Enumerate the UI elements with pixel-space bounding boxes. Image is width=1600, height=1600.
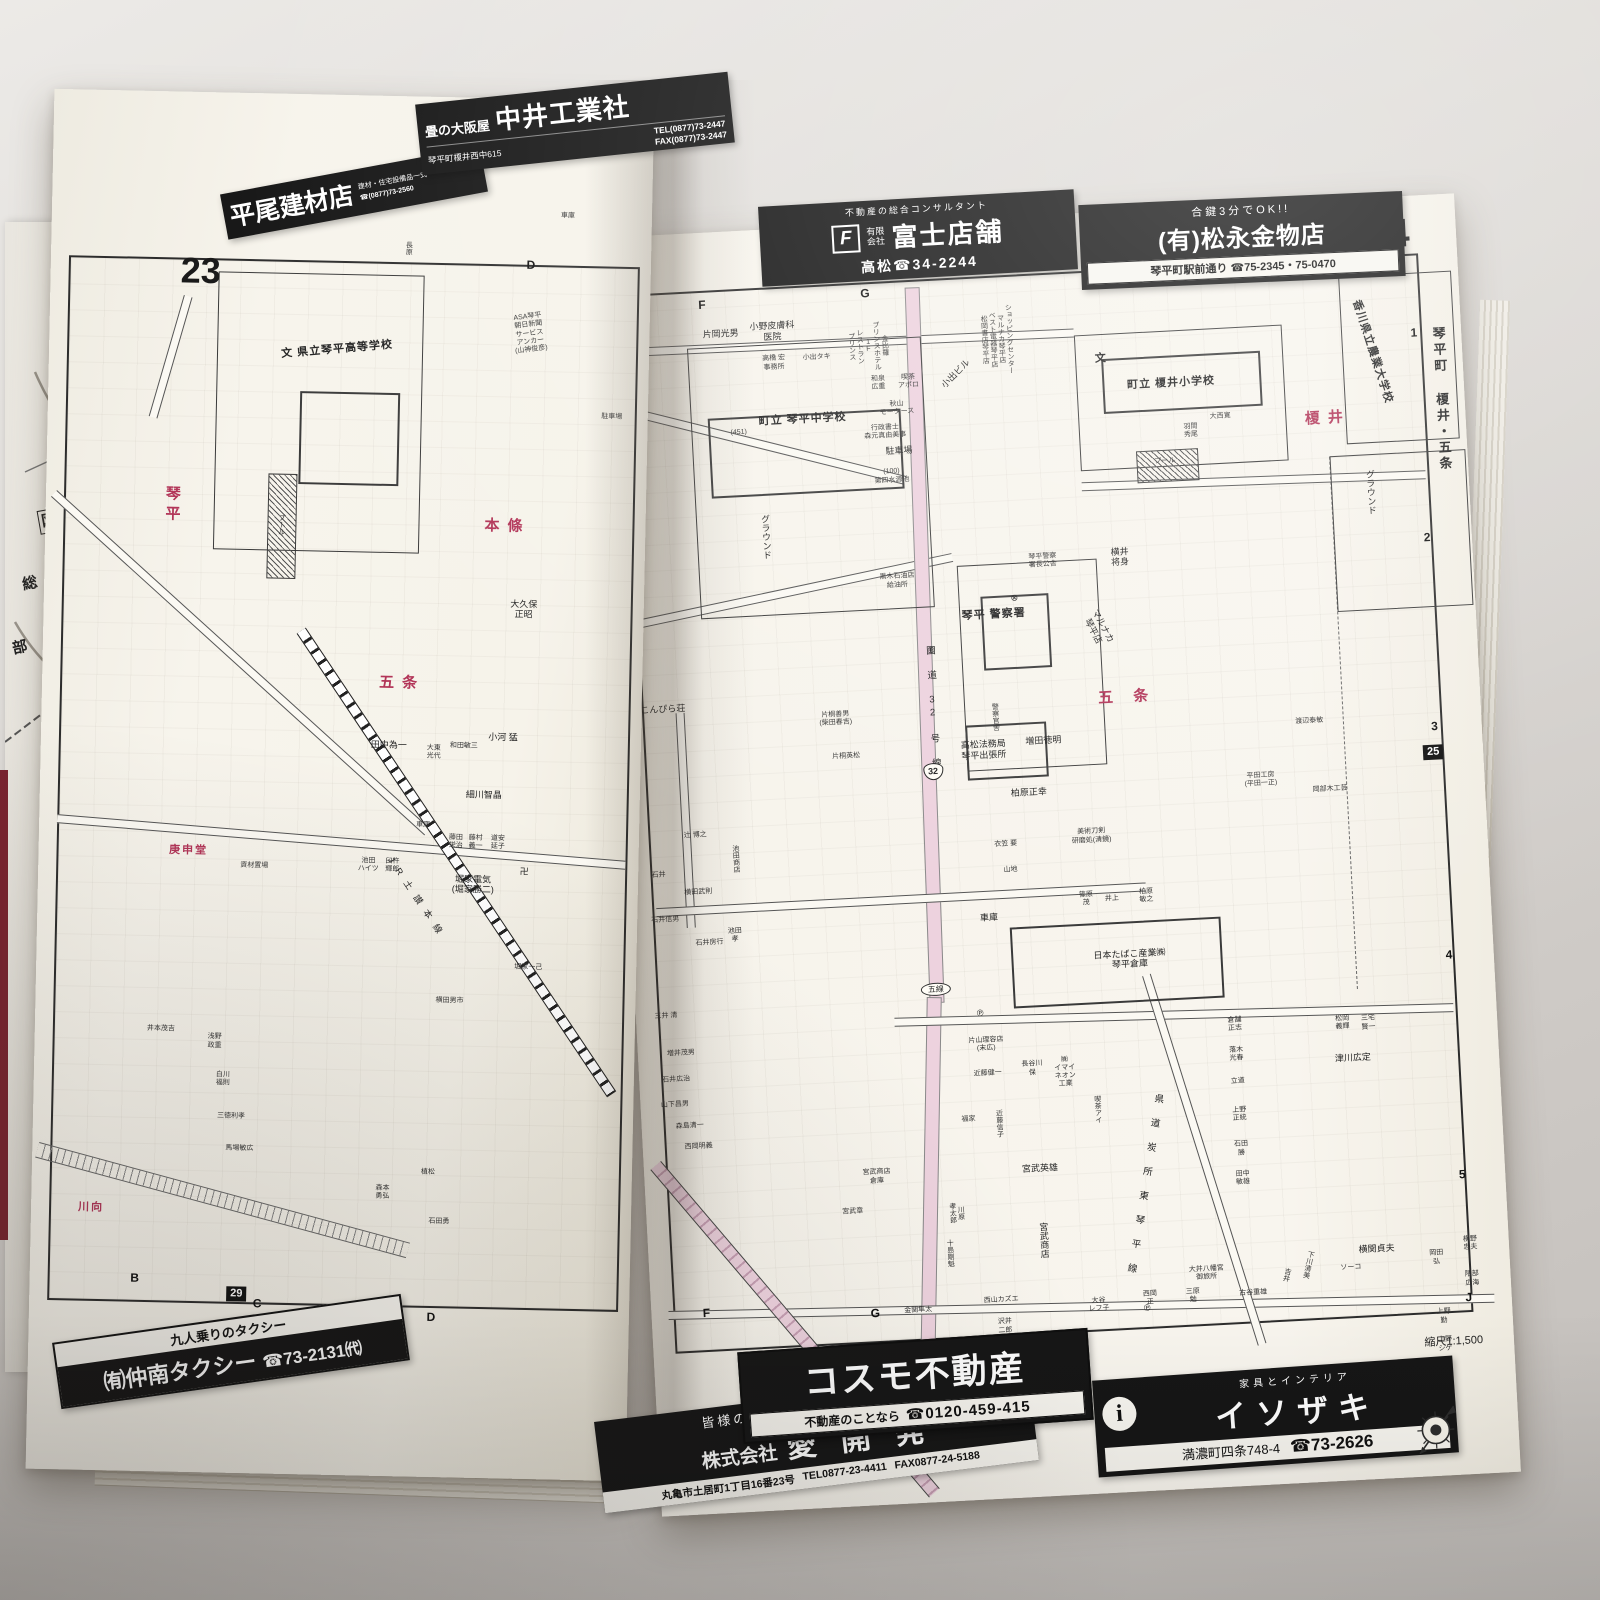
map-label: 大井八幡宮 御旅所 xyxy=(1189,1265,1225,1283)
map-label: 駐車場 xyxy=(601,414,622,423)
ad-cosmo-tagline: 不動産のことなら xyxy=(804,1407,901,1431)
map-label: 川原 孝太郎 xyxy=(947,1202,965,1224)
map-label: 金関隼太 xyxy=(904,1306,932,1316)
map-label: 石井広治 xyxy=(662,1075,690,1085)
map-label: 石田 勝 xyxy=(1234,1141,1249,1158)
map-label: 津川広定 xyxy=(1335,1051,1372,1063)
map-label: 山下昌男 xyxy=(661,1101,689,1111)
map-label: (451) xyxy=(730,429,747,438)
map-label: 池田商店 xyxy=(730,845,740,873)
map-label: 森本 勇弘 xyxy=(375,1185,389,1202)
map-label: 庚申堂 xyxy=(169,844,208,858)
map-label: 馬場敏広 xyxy=(225,1144,253,1153)
map-label: 宮武章 xyxy=(842,1207,863,1216)
map-label: 4 xyxy=(1445,948,1452,962)
map-label: 浅野 政重 xyxy=(207,1033,221,1050)
map-label: 堀家電気 (堀家勝二) xyxy=(452,873,494,895)
map-label: 和田敏三 xyxy=(450,742,478,751)
map-label: 秋山 モータース xyxy=(879,399,914,417)
map-building-box xyxy=(1330,449,1473,611)
map-label: G xyxy=(860,286,870,301)
ad-isozaki-address: 満濃町四条748-4 xyxy=(1181,1438,1280,1464)
ad-isozaki-tel: ☎73-2626 xyxy=(1289,1431,1374,1457)
map-label: 警察官舎 xyxy=(990,703,1000,731)
map-label: 上野 正統 xyxy=(1232,1106,1247,1123)
map-label: 平田工房 (平田一正) xyxy=(1244,771,1277,789)
map-label: 柏原正幸 xyxy=(1011,786,1048,798)
map-label: 石田勇 xyxy=(428,1218,449,1227)
map-label: 田中為一 xyxy=(371,739,407,750)
map-label: 喫茶アイ xyxy=(1092,1095,1102,1123)
map-label: 片山理容店 (末広) xyxy=(968,1035,1004,1053)
ad-cosmo-tel: ☎0120-459-415 xyxy=(905,1397,1031,1424)
map-label: 車庫 xyxy=(416,821,430,830)
map-label: 岡田 弘 xyxy=(1429,1250,1444,1267)
map-label: 資材置場 xyxy=(240,862,268,871)
map-label: プール xyxy=(1154,458,1175,467)
map-label: 近藤信子 xyxy=(994,1109,1004,1137)
map-label: 上野 シゲ xyxy=(1438,1336,1453,1353)
map-label: 喫茶 アポロ xyxy=(897,373,919,391)
map-label: 渡辺泰敏 xyxy=(1295,716,1323,726)
isozaki-logo-i-icon: i xyxy=(1101,1396,1137,1432)
map-label: 福家 xyxy=(961,1115,975,1124)
map-label: グラウンド xyxy=(759,514,772,559)
map-label: 美術刀剣 研磨処(清鏡) xyxy=(1071,827,1111,846)
map-label: 琴平 xyxy=(163,485,182,525)
map-label: 三原 勉 xyxy=(1186,1288,1201,1305)
map-label: 25 xyxy=(1423,744,1444,760)
map-label: 倉舗 正志 xyxy=(1227,1017,1242,1034)
map-label: 藤村 義一 xyxy=(468,835,482,852)
left-page-23: 23C17DB29CDASA琴平 朝日新聞 サービス アンカー (山神俊彦)車庫… xyxy=(26,89,655,1481)
map-label: 五 条 xyxy=(1098,687,1157,708)
map-label: 宮武英雄 xyxy=(1022,1162,1059,1174)
map-label: 小野皮膚科 医院 xyxy=(749,320,795,344)
map-label: 松岡 義輝 xyxy=(1335,1015,1350,1032)
map-label: 辻 博之 xyxy=(684,831,707,840)
map-label: ℗ xyxy=(977,1007,984,1018)
map-label: 横井 将身 xyxy=(1110,546,1129,568)
map-label: 行政書士 森元真由美事 xyxy=(864,423,907,442)
map-label: 池田 孝 xyxy=(728,927,743,944)
map-label: 3 xyxy=(1431,719,1438,733)
map-label: F xyxy=(702,1306,710,1321)
map-label: ㈱ イマイ ネオン 工業 xyxy=(1054,1055,1077,1089)
map-label: 石井房行 xyxy=(695,939,723,949)
map-label: 29 xyxy=(226,1286,247,1301)
map-label: 五条 xyxy=(379,673,425,692)
map-label: 森島清一 xyxy=(676,1122,704,1132)
map-label: 片桐善男 (柴田春吉) xyxy=(819,710,852,728)
map-label: 榎井 xyxy=(1304,408,1351,428)
map-label: J xyxy=(1465,1290,1472,1304)
map-label: 古谷重雄 xyxy=(1239,1289,1267,1299)
map-label: 宮武商店 倉庫 xyxy=(862,1168,891,1186)
map-label: 山地 xyxy=(1003,866,1017,875)
map-label: 西岡明義 xyxy=(684,1142,712,1152)
map-label: 琴平警察 署長公舎 xyxy=(1028,552,1057,570)
map-label: 柏原 敏之 xyxy=(1139,888,1154,905)
map-label: 十島剛魁 xyxy=(945,1239,955,1267)
map-label: 駐車場 xyxy=(885,445,913,457)
map-label: 総 xyxy=(20,574,38,594)
map-label: 藤田 栄治 xyxy=(449,834,463,851)
map-label: 大久保 正昭 xyxy=(510,599,537,621)
map-label: 日本たばこ産業㈱ 琴平倉庫 xyxy=(1093,946,1166,971)
ad-nakai-tagline: 畳の大阪屋 xyxy=(424,115,491,141)
map-label: 植松 xyxy=(421,1169,435,1178)
map-label: 川向 xyxy=(78,1201,104,1215)
map-label: 1 xyxy=(1410,325,1417,339)
map-label: 黒木石油店 給油所 xyxy=(879,572,915,590)
map-label: 増田徳明 xyxy=(1025,734,1062,746)
ad-chunan-tel: ☎73-2131㈹ xyxy=(260,1334,363,1373)
map-label: 宮武商店 xyxy=(1037,1222,1049,1259)
right-page-24: 琴平町 榎井・五条 24琴平町FGH18FGH30J1232545縮尺1:1,5… xyxy=(595,193,1521,1516)
map-label: 三井 清 xyxy=(654,1012,677,1021)
map-building-box xyxy=(980,593,1052,671)
map-label: 三宅 賢一 xyxy=(1361,1015,1376,1032)
map-label: 部 xyxy=(10,637,28,657)
map-label: 石井 xyxy=(651,871,665,880)
map-label: 近藤健一 xyxy=(973,1069,1001,1079)
map-label: 和泉 広重 xyxy=(871,375,886,392)
map-label: 隈部 広海 xyxy=(1465,1271,1480,1288)
map-label: 上野 勤 xyxy=(1436,1308,1451,1325)
photo-of-open-map-book: 図総部東坂元 23C17DB29CDASA琴平 朝日新聞 サービス アンカー (… xyxy=(0,0,1600,1600)
map-label: プール xyxy=(276,514,285,535)
map-label: 横田男市 xyxy=(435,997,463,1006)
map-label: 衣笠 要 xyxy=(994,840,1017,849)
map-label: 横田武則 xyxy=(684,888,712,898)
map-label: F xyxy=(698,297,706,312)
map-label: グラウンド xyxy=(1364,470,1377,515)
map-label: 高橋 宏 事務所 xyxy=(762,355,786,373)
map-label: C xyxy=(253,1296,262,1310)
map-building-box xyxy=(298,391,400,487)
map-label: ソーコ xyxy=(1340,1263,1361,1272)
map-label: 井上 xyxy=(1105,895,1119,904)
map-label: 細川智晶 xyxy=(466,789,502,800)
map-label: 長谷川 保 xyxy=(1021,1060,1043,1078)
map-label: 片岡光男 xyxy=(702,328,739,340)
map-label: 道安 延子 xyxy=(491,835,505,852)
map-label: 車庫 xyxy=(980,912,999,924)
book-cover-edge xyxy=(0,770,8,1240)
compass-rose-icon xyxy=(1406,1401,1465,1465)
map-label: 横野 忠夫 xyxy=(1463,1235,1478,1252)
map-label: 車庫 xyxy=(561,213,575,222)
map-label: 大谷 レフ子 xyxy=(1088,1297,1110,1315)
map-label: 卍 xyxy=(520,866,529,877)
map-label: 5 xyxy=(1459,1168,1466,1182)
ad-ai-company-type: 株式会社 xyxy=(700,1438,779,1474)
map-label: 池田 ハイツ xyxy=(358,857,379,874)
map-label: 小出タキ xyxy=(802,353,830,363)
map-label: 金比羅 プリンスホテル 1F レストラン プリンス xyxy=(846,320,890,371)
map-label: ASA琴平 朝日新聞 サービス アンカー (山神俊彦) xyxy=(511,311,548,356)
map-label: 小河 猛 xyxy=(488,732,518,743)
ad-fuji-company-type: 有限 会社 xyxy=(866,226,885,247)
map-label: 本條 xyxy=(484,517,530,536)
map-label: 高松法務局 琴平出張所 xyxy=(961,738,1007,762)
map-label: 23 xyxy=(180,250,221,293)
map-label: (100) 第四水源池 xyxy=(874,467,910,485)
map-label: 堀家一己 xyxy=(514,964,542,973)
map-label: 長原 xyxy=(404,241,413,255)
fuji-logo-f: F xyxy=(831,224,860,253)
ad-matsunaga-kanamono: 合鍵3分でOK!! (有)松永金物店 琴平町駅前通り ☎75-2345・75-0… xyxy=(1078,191,1405,290)
map-label: 横関貞夫 xyxy=(1358,1242,1395,1254)
map-label: 立道 xyxy=(1231,1077,1245,1086)
map-label: B xyxy=(130,1270,139,1284)
map-label: ⊗ xyxy=(1010,593,1018,604)
map-label: 篠原 茂 xyxy=(1079,891,1094,908)
map-label: 井本茂吉 xyxy=(147,1025,175,1034)
map-label: 西岡 正 xyxy=(1143,1290,1158,1307)
map-label: 片桐英松 xyxy=(832,752,860,762)
map-label: 縮尺1:1,500 xyxy=(1424,1334,1483,1350)
ad-nakai-address: 琴平町榎井西中615 xyxy=(427,147,502,167)
map-label: 石井信男 xyxy=(651,916,679,926)
map-label: 落木 光春 xyxy=(1229,1046,1244,1063)
map-label: G xyxy=(870,1306,880,1321)
map-label: 2 xyxy=(1423,530,1430,544)
map-label: 文 xyxy=(1095,352,1108,366)
map-label: 白川 福則 xyxy=(216,1071,230,1088)
map-label: D xyxy=(426,1310,435,1324)
map-label: 田中 敏雄 xyxy=(1235,1170,1250,1187)
map-label: 増井茂男 xyxy=(667,1049,695,1059)
map-label: 大東 光代 xyxy=(427,744,441,761)
map-label: 羽間 秀尾 xyxy=(1183,423,1198,440)
map-label: 大西寛 xyxy=(1209,412,1230,421)
map-label: 三徳利孝 xyxy=(217,1112,245,1121)
map-label: D xyxy=(526,257,535,271)
map-label: ショッピングセンター マルナカ琴平店 ベスト電器琴平店 松岡書店琴平店 xyxy=(978,303,1015,375)
ad-fuji-title: 富士店舗 xyxy=(891,211,1005,254)
